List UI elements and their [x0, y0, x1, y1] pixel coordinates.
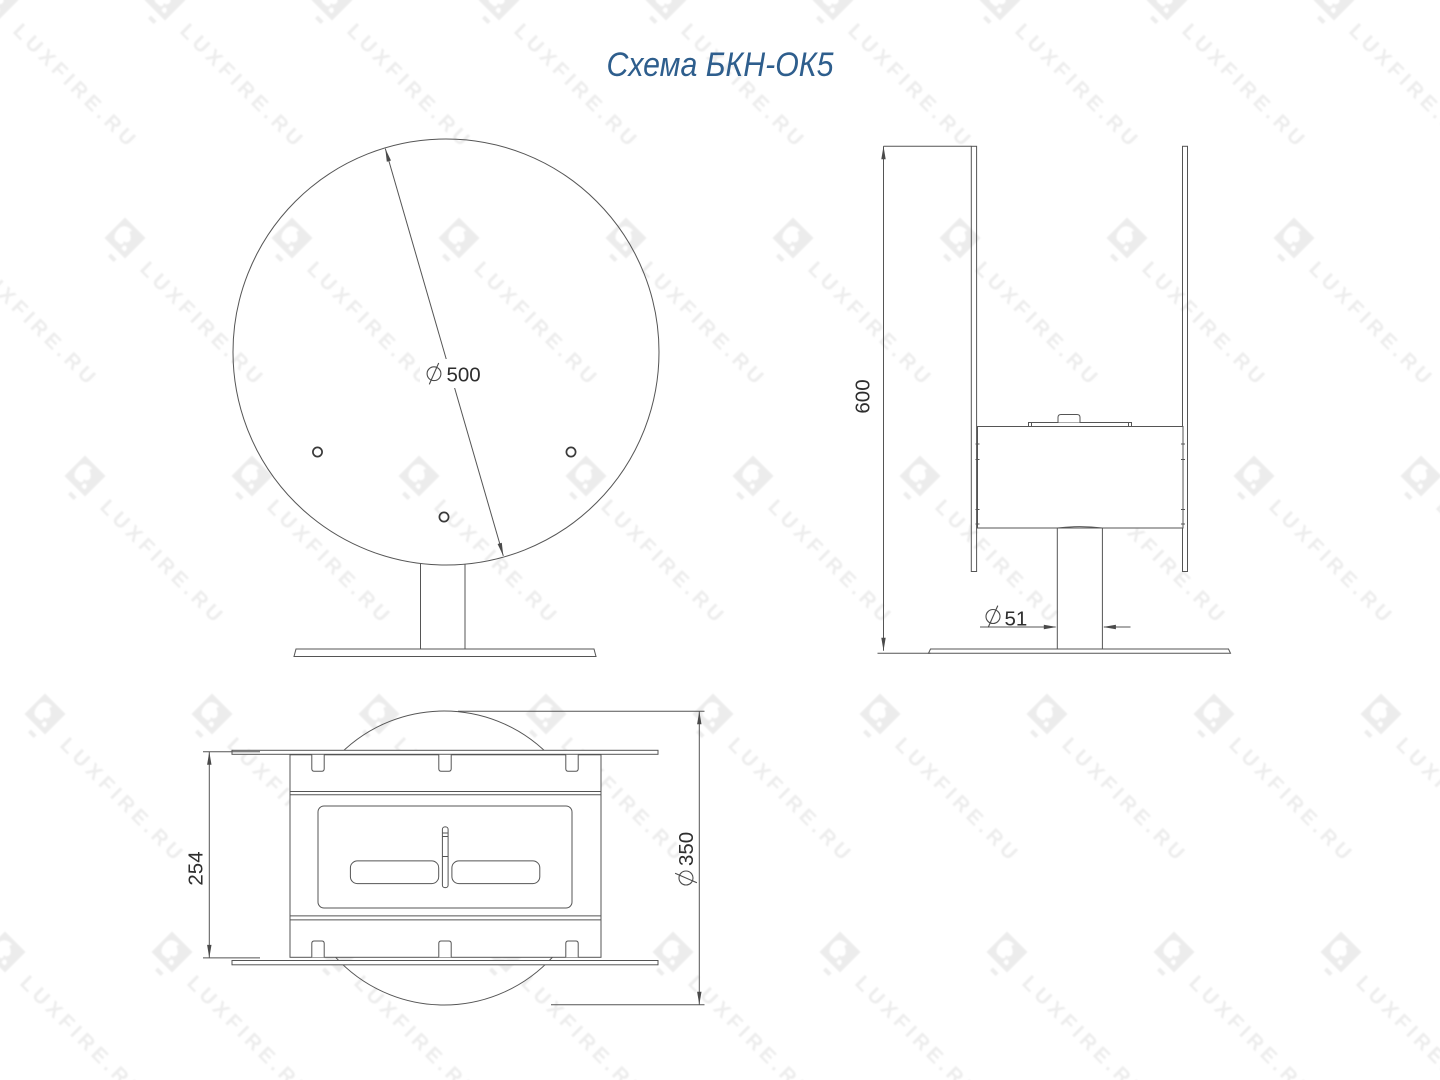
svg-text:Схема БКН-ОК5: Схема БКН-ОК5: [607, 46, 835, 84]
svg-text:600: 600: [852, 379, 875, 413]
svg-text:51: 51: [1005, 608, 1028, 631]
svg-text:500: 500: [447, 364, 481, 387]
svg-text:350: 350: [675, 832, 698, 866]
svg-text:254: 254: [185, 851, 208, 885]
